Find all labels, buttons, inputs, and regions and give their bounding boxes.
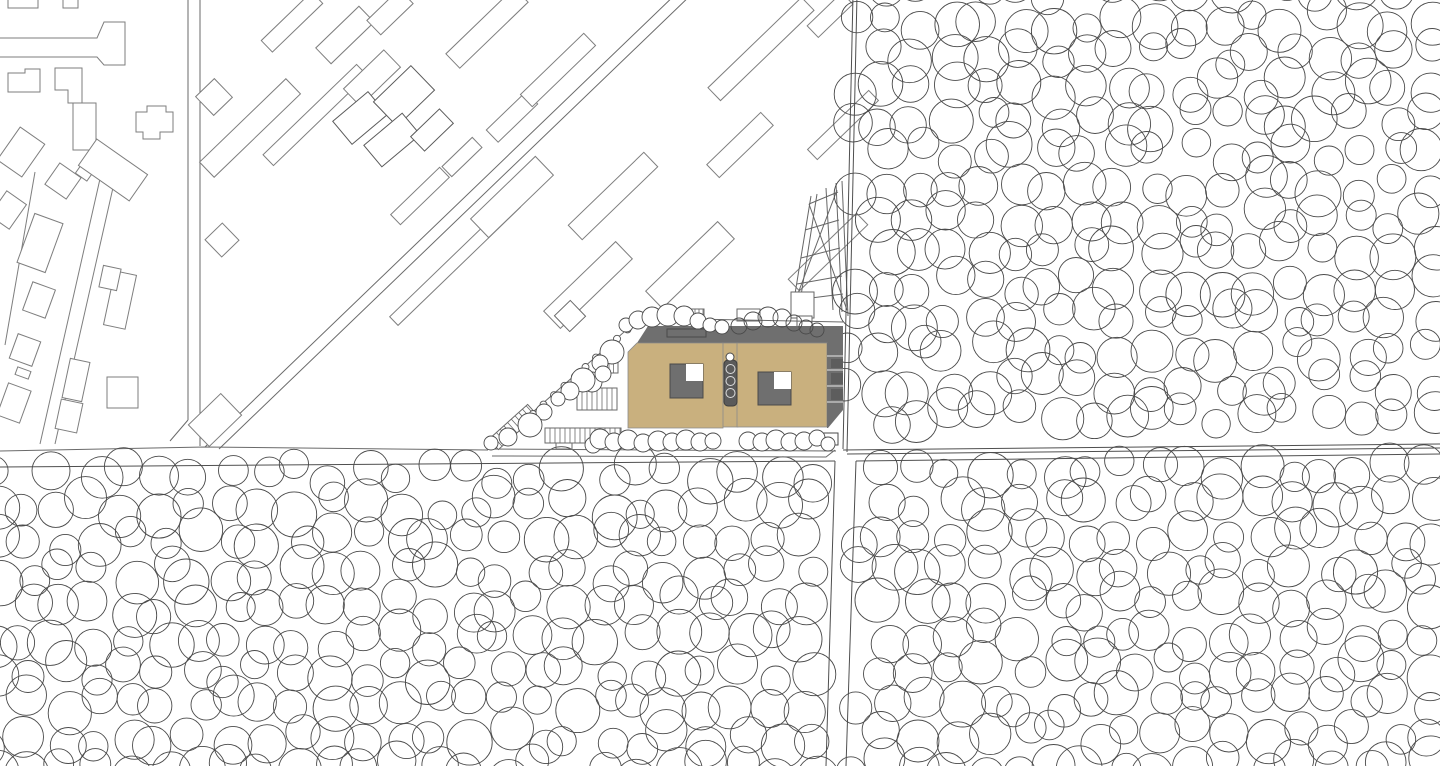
tree-circle [715, 320, 729, 334]
tree-circle [821, 437, 835, 451]
tree-circle [484, 436, 498, 450]
tree-circle [595, 366, 611, 382]
tree-circle [518, 413, 542, 437]
tree-circle [499, 428, 517, 446]
site-plan-canvas [0, 0, 1440, 766]
tree-circle [705, 433, 721, 449]
site-plan-page [0, 0, 1440, 766]
tree-circle [551, 392, 565, 406]
